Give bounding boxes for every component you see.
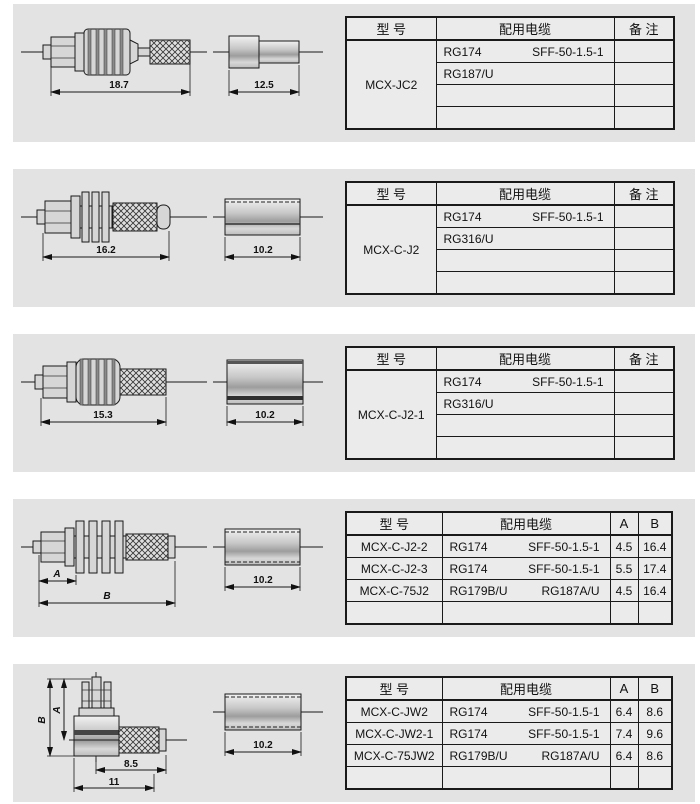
cable-cell: RG179B/U RG187A/U xyxy=(442,580,610,602)
dim-label-w2: 11 xyxy=(109,777,120,788)
dim-label-ferrule: 10.2 xyxy=(253,575,273,586)
dim-b-cell: 16.4 xyxy=(638,535,672,558)
cable-cell: RG316/U xyxy=(436,393,614,415)
cable-name-2: SFF-50-1.5-1 xyxy=(532,45,603,59)
col-header-model: 型 号 xyxy=(346,347,436,370)
ferrule-drawing: 10.2 xyxy=(213,340,323,458)
spec-table: 型 号 配用电缆 A B MCX-C-J2-2 RG174 SFF-50-1.5… xyxy=(345,511,673,625)
col-header-remark: 备 注 xyxy=(614,347,674,370)
remark-cell xyxy=(614,415,674,437)
dim-a-cell xyxy=(610,602,638,625)
dim-b-cell: 17.4 xyxy=(638,558,672,580)
cable-cell xyxy=(436,107,614,130)
cable-name-1: RG316/U xyxy=(444,232,494,246)
cable-name-2: SFF-50-1.5-1 xyxy=(532,375,603,389)
dim-label-ferrule: 10.2 xyxy=(255,410,275,421)
panel-mcx-jc2: 18.7 12.5 型 号 配用电缆 备 注 MCX-JC2 RG174 SFF… xyxy=(13,4,695,142)
remark-cell xyxy=(614,85,674,107)
connector-drawing: A B xyxy=(19,505,209,627)
cable-name-1: RG179B/U xyxy=(450,749,508,763)
dim-a-cell: 6.4 xyxy=(610,745,638,767)
col-header-cable: 配用电缆 xyxy=(442,677,610,700)
cable-cell: RG174 SFF-50-1.5-1 xyxy=(442,723,610,745)
dim-b-cell xyxy=(638,602,672,625)
remark-cell xyxy=(614,228,674,250)
dim-label-ferrule: 10.2 xyxy=(253,740,273,751)
cable-cell: RG174 SFF-50-1.5-1 xyxy=(436,40,614,63)
dim-label-b: B xyxy=(37,716,48,723)
dim-b-cell: 8.6 xyxy=(638,745,672,767)
cable-cell xyxy=(436,85,614,107)
dim-b-cell: 8.6 xyxy=(638,700,672,723)
cable-name-2: SFF-50-1.5-1 xyxy=(528,705,599,719)
cable-name-1: RG174 xyxy=(450,727,488,741)
model-cell: MCX-C-JW2-1 xyxy=(346,723,442,745)
model-cell: MCX-C-J2 xyxy=(346,205,436,294)
spec-table: 型 号 配用电缆 备 注 MCX-C-J2-1 RG174 SFF-50-1.5… xyxy=(345,346,675,460)
col-header-b: B xyxy=(638,677,672,700)
dim-label-w1: 8.5 xyxy=(124,759,138,770)
dim-a-cell xyxy=(610,767,638,790)
dim-a-cell: 7.4 xyxy=(610,723,638,745)
remark-cell xyxy=(614,393,674,415)
cable-name-2: RG187A/U xyxy=(541,584,599,598)
connector-drawing: 18.7 xyxy=(19,10,209,128)
col-header-cable: 配用电缆 xyxy=(436,17,614,40)
col-header-model: 型 号 xyxy=(346,182,436,205)
cable-cell: RG174 SFF-50-1.5-1 xyxy=(442,535,610,558)
cable-cell: RG179B/U RG187A/U xyxy=(442,745,610,767)
cable-cell xyxy=(436,272,614,295)
model-cell: MCX-C-75JW2 xyxy=(346,745,442,767)
cable-name-1: RG187/U xyxy=(444,67,494,81)
cable-name-1: RG179B/U xyxy=(450,584,508,598)
panel-mcx-c-jw2: B A 8.5 11 10.2 型 号 配用电缆 A B MCX-C-JW2 R… xyxy=(13,664,695,802)
cable-name-2: SFF-50-1.5-1 xyxy=(528,540,599,554)
model-cell: MCX-C-J2-1 xyxy=(346,370,436,459)
ferrule-drawing: 12.5 xyxy=(213,10,323,128)
model-cell: MCX-JC2 xyxy=(346,40,436,129)
cable-cell xyxy=(442,767,610,790)
col-header-b: B xyxy=(638,512,672,535)
remark-cell xyxy=(614,370,674,393)
panel-mcx-c-j2-2: A B 10.2 型 号 配用电缆 A B MCX-C-J2-2 RG174 S… xyxy=(13,499,695,637)
cable-cell xyxy=(436,437,614,460)
col-header-model: 型 号 xyxy=(346,512,442,535)
dim-label-ferrule: 12.5 xyxy=(254,80,274,91)
model-cell: MCX-C-J2-3 xyxy=(346,558,442,580)
spec-table: 型 号 配用电缆 备 注 MCX-C-J2 RG174 SFF-50-1.5-1… xyxy=(345,181,675,295)
cable-cell: RG174 SFF-50-1.5-1 xyxy=(442,558,610,580)
dim-a-cell: 6.4 xyxy=(610,700,638,723)
ferrule-drawing: 10.2 xyxy=(213,670,323,788)
dim-label-main: 15.3 xyxy=(93,410,113,421)
remark-cell xyxy=(614,437,674,460)
model-cell xyxy=(346,602,442,625)
col-header-cable: 配用电缆 xyxy=(442,512,610,535)
model-cell: MCX-C-J2-2 xyxy=(346,535,442,558)
remark-cell xyxy=(614,63,674,85)
model-cell: MCX-C-75J2 xyxy=(346,580,442,602)
cable-cell xyxy=(442,602,610,625)
cable-cell: RG316/U xyxy=(436,228,614,250)
col-header-a: A xyxy=(610,677,638,700)
connector-drawing: 16.2 xyxy=(19,175,209,293)
dim-label-b: B xyxy=(103,591,110,602)
dim-a-cell: 4.5 xyxy=(610,535,638,558)
spec-table: 型 号 配用电缆 备 注 MCX-JC2 RG174 SFF-50-1.5-1 … xyxy=(345,16,675,130)
cable-name-1: RG174 xyxy=(444,375,482,389)
model-cell: MCX-C-JW2 xyxy=(346,700,442,723)
ferrule-drawing: 10.2 xyxy=(213,175,323,293)
cable-cell xyxy=(436,415,614,437)
remark-cell xyxy=(614,205,674,228)
cable-name-1: RG174 xyxy=(450,540,488,554)
dim-label-a: A xyxy=(52,569,60,580)
dim-label-main: 18.7 xyxy=(109,80,129,91)
panel-mcx-c-j2-1: 15.3 10.2 型 号 配用电缆 备 注 MCX-C-J2-1 RG174 … xyxy=(13,334,695,472)
remark-cell xyxy=(614,107,674,130)
catalog-page: { "panels": [ { "model": "MCX-JC2", "tab… xyxy=(0,0,700,804)
dim-b-cell: 16.4 xyxy=(638,580,672,602)
cable-name-2: RG187A/U xyxy=(541,749,599,763)
dim-a-cell: 4.5 xyxy=(610,580,638,602)
cable-cell: RG174 SFF-50-1.5-1 xyxy=(436,205,614,228)
cable-name-1: RG174 xyxy=(444,210,482,224)
dim-b-cell xyxy=(638,767,672,790)
dim-b-cell: 9.6 xyxy=(638,723,672,745)
cable-name-2: SFF-50-1.5-1 xyxy=(528,727,599,741)
col-header-remark: 备 注 xyxy=(614,182,674,205)
spec-table: 型 号 配用电缆 A B MCX-C-JW2 RG174 SFF-50-1.5-… xyxy=(345,676,673,790)
col-header-cable: 配用电缆 xyxy=(436,347,614,370)
cable-cell: RG174 SFF-50-1.5-1 xyxy=(442,700,610,723)
cable-name-2: SFF-50-1.5-1 xyxy=(528,562,599,576)
col-header-remark: 备 注 xyxy=(614,17,674,40)
dim-label-ferrule: 10.2 xyxy=(253,245,273,256)
cable-cell: RG187/U xyxy=(436,63,614,85)
cable-name-1: RG174 xyxy=(444,45,482,59)
dim-label-a: A xyxy=(52,706,63,714)
connector-drawing: 15.3 xyxy=(19,340,209,458)
cable-name-1: RG174 xyxy=(450,562,488,576)
ferrule-drawing: 10.2 xyxy=(213,505,323,623)
col-header-model: 型 号 xyxy=(346,17,436,40)
col-header-cable: 配用电缆 xyxy=(436,182,614,205)
col-header-model: 型 号 xyxy=(346,677,442,700)
col-header-a: A xyxy=(610,512,638,535)
cable-cell: RG174 SFF-50-1.5-1 xyxy=(436,370,614,393)
remark-cell xyxy=(614,250,674,272)
cable-cell xyxy=(436,250,614,272)
remark-cell xyxy=(614,40,674,63)
model-cell xyxy=(346,767,442,790)
panel-mcx-c-j2: 16.2 10.2 型 号 配用电缆 备 注 MCX-C-J2 RG174 SF… xyxy=(13,169,695,307)
cable-name-2: SFF-50-1.5-1 xyxy=(532,210,603,224)
dim-label-main: 16.2 xyxy=(96,245,116,256)
remark-cell xyxy=(614,272,674,295)
dim-a-cell: 5.5 xyxy=(610,558,638,580)
cable-name-1: RG174 xyxy=(450,705,488,719)
connector-drawing: B A 8.5 11 xyxy=(19,670,209,800)
cable-name-1: RG316/U xyxy=(444,397,494,411)
